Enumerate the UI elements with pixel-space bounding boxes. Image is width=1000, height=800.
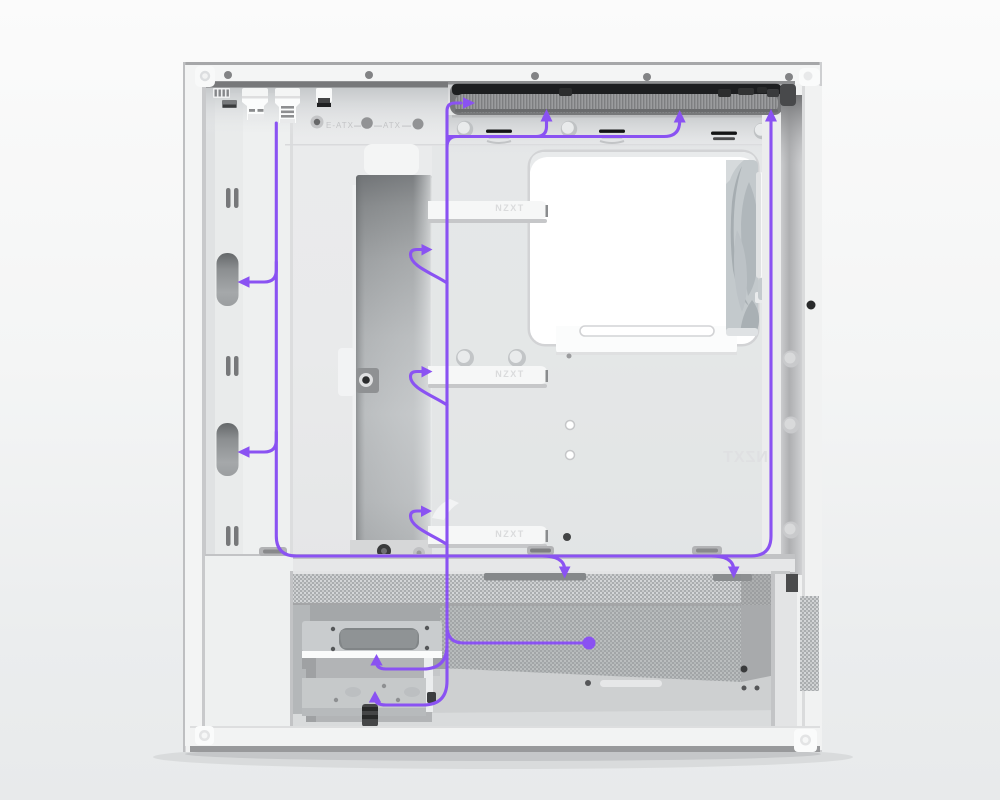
svg-text:NZXT: NZXT <box>722 449 768 466</box>
svg-text:NZXT: NZXT <box>495 203 525 213</box>
svg-text:NZXT: NZXT <box>495 529 525 539</box>
svg-text:E-ATX: E-ATX <box>326 121 354 130</box>
svg-text:ATX: ATX <box>383 121 401 130</box>
svg-text:NZXT: NZXT <box>495 369 525 379</box>
